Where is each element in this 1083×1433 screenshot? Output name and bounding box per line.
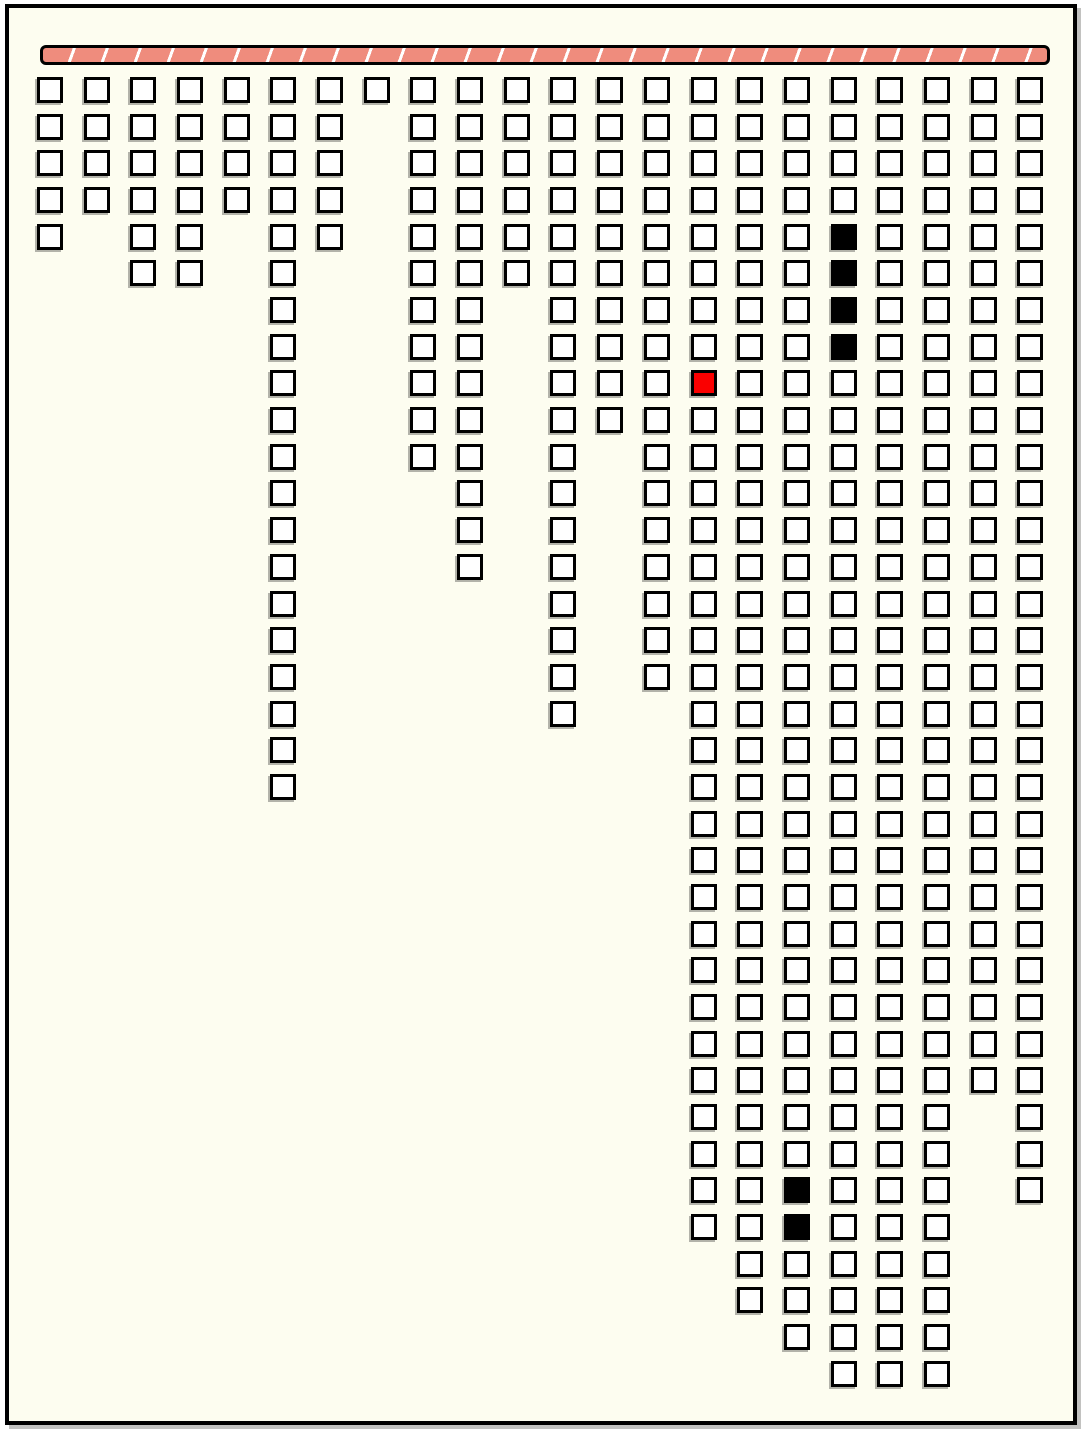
grid-cell[interactable]: [737, 1287, 763, 1313]
grid-cell[interactable]: [971, 517, 997, 543]
grid-cell[interactable]: [644, 187, 670, 213]
grid-cell[interactable]: [597, 77, 623, 103]
grid-cell[interactable]: [737, 811, 763, 837]
grid-cell[interactable]: [644, 114, 670, 140]
grid-cell[interactable]: [597, 150, 623, 176]
grid-cell[interactable]: [877, 1361, 903, 1387]
grid-cell[interactable]: [270, 77, 296, 103]
grid-cell[interactable]: [550, 554, 576, 580]
grid-cell[interactable]: [457, 150, 483, 176]
grid-cell[interactable]: [784, 517, 810, 543]
grid-cell[interactable]: [457, 407, 483, 433]
grid-cell[interactable]: [831, 517, 857, 543]
grid-cell[interactable]: [877, 150, 903, 176]
grid-cell[interactable]: [270, 370, 296, 396]
grid-cell[interactable]: [831, 1214, 857, 1240]
grid-cell[interactable]: [831, 1104, 857, 1130]
grid-cell[interactable]: [691, 737, 717, 763]
grid-cell[interactable]: [504, 187, 530, 213]
grid-cell[interactable]: [877, 1214, 903, 1240]
grid-cell[interactable]: [784, 444, 810, 470]
grid-cell[interactable]: [784, 701, 810, 727]
grid-cell[interactable]: [737, 370, 763, 396]
grid-cell[interactable]: [504, 224, 530, 250]
grid-cell[interactable]: [457, 554, 483, 580]
grid-cell[interactable]: [924, 847, 950, 873]
grid-cell[interactable]: [924, 737, 950, 763]
grid-cell[interactable]: [1017, 591, 1043, 617]
grid-cell[interactable]: [691, 701, 717, 727]
grid-cell[interactable]: [784, 407, 810, 433]
grid-cell[interactable]: [224, 187, 250, 213]
grid-cell[interactable]: [737, 260, 763, 286]
grid-cell[interactable]: [550, 591, 576, 617]
grid-cell[interactable]: [831, 1031, 857, 1057]
grid-cell[interactable]: [784, 884, 810, 910]
grid-cell[interactable]: [410, 187, 436, 213]
grid-cell[interactable]: [784, 591, 810, 617]
grid-cell[interactable]: [691, 554, 717, 580]
grid-cell[interactable]: [924, 517, 950, 543]
grid-cell[interactable]: [971, 1067, 997, 1093]
grid-cell[interactable]: [924, 187, 950, 213]
grid-cell[interactable]: [737, 444, 763, 470]
grid-cell[interactable]: [737, 224, 763, 250]
grid-cell[interactable]: [270, 627, 296, 653]
grid-cell[interactable]: [550, 150, 576, 176]
grid-cell[interactable]: [691, 884, 717, 910]
grid-cell[interactable]: [737, 407, 763, 433]
grid-cell[interactable]: [971, 407, 997, 433]
grid-cell[interactable]: [1017, 774, 1043, 800]
grid-cell[interactable]: [924, 370, 950, 396]
grid-cell[interactable]: [831, 260, 857, 286]
grid-cell[interactable]: [831, 224, 857, 250]
grid-cell[interactable]: [644, 444, 670, 470]
grid-cell[interactable]: [504, 150, 530, 176]
grid-cell[interactable]: [457, 370, 483, 396]
grid-cell[interactable]: [831, 811, 857, 837]
grid-cell[interactable]: [550, 517, 576, 543]
grid-cell[interactable]: [924, 994, 950, 1020]
grid-cell[interactable]: [691, 407, 717, 433]
grid-cell[interactable]: [924, 811, 950, 837]
grid-cell[interactable]: [924, 77, 950, 103]
grid-cell[interactable]: [877, 1067, 903, 1093]
grid-cell[interactable]: [457, 444, 483, 470]
grid-cell[interactable]: [644, 370, 670, 396]
grid-cell[interactable]: [691, 334, 717, 360]
grid-cell[interactable]: [317, 77, 343, 103]
grid-cell[interactable]: [831, 1361, 857, 1387]
grid-cell[interactable]: [691, 957, 717, 983]
grid-cell[interactable]: [644, 77, 670, 103]
grid-cell[interactable]: [457, 517, 483, 543]
grid-cell[interactable]: [784, 187, 810, 213]
grid-cell[interactable]: [691, 517, 717, 543]
grid-cell[interactable]: [84, 150, 110, 176]
grid-cell[interactable]: [784, 370, 810, 396]
grid-cell[interactable]: [644, 297, 670, 323]
grid-cell[interactable]: [270, 554, 296, 580]
grid-cell[interactable]: [644, 480, 670, 506]
grid-cell[interactable]: [784, 297, 810, 323]
grid-cell[interactable]: [691, 1177, 717, 1203]
grid-cell[interactable]: [737, 1251, 763, 1277]
grid-cell[interactable]: [364, 77, 390, 103]
grid-cell[interactable]: [691, 1214, 717, 1240]
grid-cell[interactable]: [831, 664, 857, 690]
grid-cell[interactable]: [597, 224, 623, 250]
grid-cell[interactable]: [1017, 701, 1043, 727]
grid-cell[interactable]: [831, 737, 857, 763]
grid-cell[interactable]: [924, 297, 950, 323]
grid-cell[interactable]: [691, 994, 717, 1020]
grid-cell[interactable]: [831, 1287, 857, 1313]
grid-cell[interactable]: [224, 150, 250, 176]
grid-cell[interactable]: [1017, 370, 1043, 396]
grid-cell[interactable]: [37, 150, 63, 176]
grid-cell[interactable]: [831, 1067, 857, 1093]
grid-cell[interactable]: [130, 114, 156, 140]
grid-cell[interactable]: [691, 77, 717, 103]
grid-cell[interactable]: [877, 114, 903, 140]
grid-cell[interactable]: [971, 150, 997, 176]
grid-cell[interactable]: [224, 77, 250, 103]
grid-cell[interactable]: [784, 260, 810, 286]
grid-cell[interactable]: [971, 884, 997, 910]
grid-cell[interactable]: [1017, 334, 1043, 360]
grid-cell[interactable]: [784, 1031, 810, 1057]
grid-cell[interactable]: [924, 957, 950, 983]
grid-cell[interactable]: [1017, 1104, 1043, 1130]
grid-cell[interactable]: [177, 150, 203, 176]
grid-cell[interactable]: [1017, 407, 1043, 433]
grid-cell[interactable]: [1017, 737, 1043, 763]
grid-cell[interactable]: [37, 187, 63, 213]
grid-cell[interactable]: [784, 811, 810, 837]
grid-cell[interactable]: [971, 224, 997, 250]
grid-cell[interactable]: [877, 627, 903, 653]
grid-cell[interactable]: [270, 150, 296, 176]
grid-cell[interactable]: [270, 224, 296, 250]
grid-cell[interactable]: [504, 114, 530, 140]
grid-cell[interactable]: [550, 334, 576, 360]
grid-cell[interactable]: [737, 627, 763, 653]
grid-cell[interactable]: [877, 737, 903, 763]
grid-cell[interactable]: [784, 1214, 810, 1240]
grid-cell[interactable]: [877, 957, 903, 983]
grid-cell[interactable]: [270, 701, 296, 727]
grid-cell[interactable]: [550, 407, 576, 433]
grid-cell[interactable]: [831, 114, 857, 140]
grid-cell[interactable]: [550, 370, 576, 396]
grid-cell[interactable]: [177, 187, 203, 213]
grid-cell[interactable]: [550, 480, 576, 506]
grid-cell[interactable]: [971, 480, 997, 506]
grid-cell[interactable]: [784, 77, 810, 103]
grid-cell[interactable]: [644, 554, 670, 580]
grid-cell[interactable]: [831, 77, 857, 103]
grid-cell[interactable]: [737, 847, 763, 873]
grid-cell[interactable]: [831, 334, 857, 360]
grid-cell[interactable]: [550, 664, 576, 690]
grid-cell[interactable]: [831, 480, 857, 506]
grid-cell[interactable]: [270, 737, 296, 763]
grid-cell[interactable]: [457, 480, 483, 506]
grid-cell[interactable]: [410, 224, 436, 250]
grid-cell[interactable]: [550, 701, 576, 727]
grid-cell[interactable]: [597, 297, 623, 323]
grid-cell[interactable]: [877, 774, 903, 800]
grid-cell[interactable]: [737, 737, 763, 763]
grid-cell[interactable]: [877, 1287, 903, 1313]
grid-cell[interactable]: [831, 701, 857, 727]
grid-cell[interactable]: [1017, 627, 1043, 653]
grid-cell[interactable]: [784, 627, 810, 653]
grid-cell[interactable]: [831, 591, 857, 617]
grid-cell[interactable]: [737, 1031, 763, 1057]
grid-cell[interactable]: [737, 921, 763, 947]
grid-cell[interactable]: [877, 334, 903, 360]
grid-cell[interactable]: [924, 1031, 950, 1057]
grid-cell[interactable]: [457, 260, 483, 286]
grid-cell[interactable]: [84, 114, 110, 140]
grid-cell[interactable]: [270, 444, 296, 470]
grid-cell[interactable]: [831, 407, 857, 433]
grid-cell[interactable]: [784, 921, 810, 947]
grid-cell[interactable]: [784, 480, 810, 506]
grid-cell[interactable]: [37, 77, 63, 103]
grid-cell[interactable]: [924, 664, 950, 690]
grid-cell[interactable]: [1017, 480, 1043, 506]
grid-cell[interactable]: [317, 187, 343, 213]
grid-cell[interactable]: [410, 334, 436, 360]
grid-cell[interactable]: [877, 921, 903, 947]
grid-cell[interactable]: [644, 260, 670, 286]
grid-cell[interactable]: [37, 114, 63, 140]
grid-cell[interactable]: [737, 334, 763, 360]
grid-cell[interactable]: [1017, 884, 1043, 910]
grid-cell[interactable]: [691, 370, 717, 396]
grid-cell[interactable]: [924, 1067, 950, 1093]
grid-cell[interactable]: [877, 260, 903, 286]
grid-cell[interactable]: [971, 297, 997, 323]
grid-cell[interactable]: [784, 1104, 810, 1130]
grid-cell[interactable]: [737, 591, 763, 617]
grid-cell[interactable]: [691, 774, 717, 800]
grid-cell[interactable]: [597, 114, 623, 140]
grid-cell[interactable]: [924, 407, 950, 433]
grid-cell[interactable]: [971, 334, 997, 360]
grid-cell[interactable]: [924, 260, 950, 286]
grid-cell[interactable]: [877, 591, 903, 617]
grid-cell[interactable]: [1017, 554, 1043, 580]
grid-cell[interactable]: [691, 664, 717, 690]
grid-cell[interactable]: [691, 921, 717, 947]
grid-cell[interactable]: [737, 114, 763, 140]
grid-cell[interactable]: [971, 77, 997, 103]
grid-cell[interactable]: [691, 187, 717, 213]
grid-cell[interactable]: [971, 664, 997, 690]
grid-cell[interactable]: [924, 774, 950, 800]
grid-cell[interactable]: [550, 77, 576, 103]
grid-cell[interactable]: [831, 884, 857, 910]
grid-cell[interactable]: [971, 701, 997, 727]
grid-cell[interactable]: [691, 480, 717, 506]
grid-cell[interactable]: [784, 664, 810, 690]
grid-cell[interactable]: [924, 1324, 950, 1350]
grid-cell[interactable]: [924, 1287, 950, 1313]
grid-cell[interactable]: [270, 334, 296, 360]
grid-cell[interactable]: [784, 737, 810, 763]
grid-cell[interactable]: [410, 114, 436, 140]
grid-cell[interactable]: [691, 811, 717, 837]
grid-cell[interactable]: [971, 591, 997, 617]
grid-cell[interactable]: [737, 77, 763, 103]
grid-cell[interactable]: [1017, 77, 1043, 103]
grid-cell[interactable]: [457, 297, 483, 323]
grid-cell[interactable]: [877, 517, 903, 543]
grid-cell[interactable]: [924, 150, 950, 176]
grid-cell[interactable]: [971, 921, 997, 947]
grid-cell[interactable]: [831, 444, 857, 470]
grid-cell[interactable]: [691, 1104, 717, 1130]
grid-cell[interactable]: [410, 407, 436, 433]
grid-cell[interactable]: [737, 480, 763, 506]
grid-cell[interactable]: [831, 994, 857, 1020]
grid-cell[interactable]: [877, 224, 903, 250]
grid-cell[interactable]: [784, 1067, 810, 1093]
grid-cell[interactable]: [877, 1141, 903, 1167]
grid-cell[interactable]: [924, 591, 950, 617]
grid-cell[interactable]: [971, 114, 997, 140]
grid-cell[interactable]: [270, 591, 296, 617]
grid-cell[interactable]: [177, 77, 203, 103]
grid-cell[interactable]: [691, 297, 717, 323]
grid-cell[interactable]: [270, 114, 296, 140]
grid-cell[interactable]: [177, 260, 203, 286]
grid-cell[interactable]: [877, 1104, 903, 1130]
grid-cell[interactable]: [877, 444, 903, 470]
grid-cell[interactable]: [784, 774, 810, 800]
grid-cell[interactable]: [691, 1067, 717, 1093]
grid-cell[interactable]: [644, 627, 670, 653]
grid-cell[interactable]: [550, 627, 576, 653]
grid-cell[interactable]: [270, 407, 296, 433]
grid-cell[interactable]: [784, 150, 810, 176]
grid-cell[interactable]: [831, 957, 857, 983]
grid-cell[interactable]: [971, 994, 997, 1020]
grid-cell[interactable]: [831, 774, 857, 800]
grid-cell[interactable]: [831, 1177, 857, 1203]
grid-cell[interactable]: [971, 370, 997, 396]
grid-cell[interactable]: [737, 1141, 763, 1167]
grid-cell[interactable]: [877, 370, 903, 396]
grid-cell[interactable]: [504, 260, 530, 286]
grid-cell[interactable]: [831, 150, 857, 176]
grid-cell[interactable]: [784, 957, 810, 983]
grid-cell[interactable]: [877, 1251, 903, 1277]
grid-cell[interactable]: [784, 1141, 810, 1167]
grid-cell[interactable]: [597, 187, 623, 213]
grid-cell[interactable]: [691, 847, 717, 873]
grid-cell[interactable]: [924, 224, 950, 250]
grid-cell[interactable]: [1017, 1067, 1043, 1093]
grid-cell[interactable]: [737, 884, 763, 910]
grid-cell[interactable]: [457, 334, 483, 360]
grid-cell[interactable]: [737, 1104, 763, 1130]
grid-cell[interactable]: [317, 224, 343, 250]
grid-cell[interactable]: [877, 77, 903, 103]
grid-cell[interactable]: [737, 994, 763, 1020]
grid-cell[interactable]: [831, 1141, 857, 1167]
grid-cell[interactable]: [691, 114, 717, 140]
grid-cell[interactable]: [971, 554, 997, 580]
grid-cell[interactable]: [831, 370, 857, 396]
grid-cell[interactable]: [177, 114, 203, 140]
grid-cell[interactable]: [924, 1361, 950, 1387]
grid-cell[interactable]: [457, 77, 483, 103]
grid-cell[interactable]: [877, 811, 903, 837]
grid-cell[interactable]: [130, 150, 156, 176]
grid-cell[interactable]: [831, 1324, 857, 1350]
grid-cell[interactable]: [924, 921, 950, 947]
grid-cell[interactable]: [924, 554, 950, 580]
grid-cell[interactable]: [270, 297, 296, 323]
grid-cell[interactable]: [924, 1251, 950, 1277]
grid-cell[interactable]: [1017, 994, 1043, 1020]
grid-cell[interactable]: [784, 1287, 810, 1313]
grid-cell[interactable]: [1017, 297, 1043, 323]
grid-cell[interactable]: [924, 1141, 950, 1167]
grid-cell[interactable]: [410, 444, 436, 470]
grid-cell[interactable]: [924, 701, 950, 727]
grid-cell[interactable]: [737, 517, 763, 543]
grid-cell[interactable]: [410, 260, 436, 286]
grid-cell[interactable]: [737, 554, 763, 580]
grid-cell[interactable]: [550, 260, 576, 286]
grid-cell[interactable]: [550, 297, 576, 323]
grid-cell[interactable]: [1017, 1141, 1043, 1167]
grid-cell[interactable]: [924, 1177, 950, 1203]
grid-cell[interactable]: [737, 701, 763, 727]
grid-cell[interactable]: [644, 334, 670, 360]
grid-cell[interactable]: [410, 297, 436, 323]
grid-cell[interactable]: [224, 114, 250, 140]
grid-cell[interactable]: [784, 334, 810, 360]
grid-cell[interactable]: [597, 370, 623, 396]
grid-cell[interactable]: [1017, 444, 1043, 470]
grid-cell[interactable]: [1017, 957, 1043, 983]
grid-cell[interactable]: [644, 517, 670, 543]
grid-cell[interactable]: [971, 847, 997, 873]
grid-cell[interactable]: [924, 444, 950, 470]
grid-cell[interactable]: [550, 444, 576, 470]
grid-cell[interactable]: [130, 187, 156, 213]
grid-cell[interactable]: [691, 224, 717, 250]
grid-cell[interactable]: [84, 77, 110, 103]
grid-cell[interactable]: [971, 444, 997, 470]
grid-cell[interactable]: [877, 1177, 903, 1203]
grid-cell[interactable]: [1017, 114, 1043, 140]
grid-cell[interactable]: [877, 994, 903, 1020]
grid-cell[interactable]: [410, 370, 436, 396]
grid-cell[interactable]: [784, 994, 810, 1020]
grid-cell[interactable]: [691, 1141, 717, 1167]
grid-cell[interactable]: [644, 591, 670, 617]
grid-cell[interactable]: [831, 297, 857, 323]
